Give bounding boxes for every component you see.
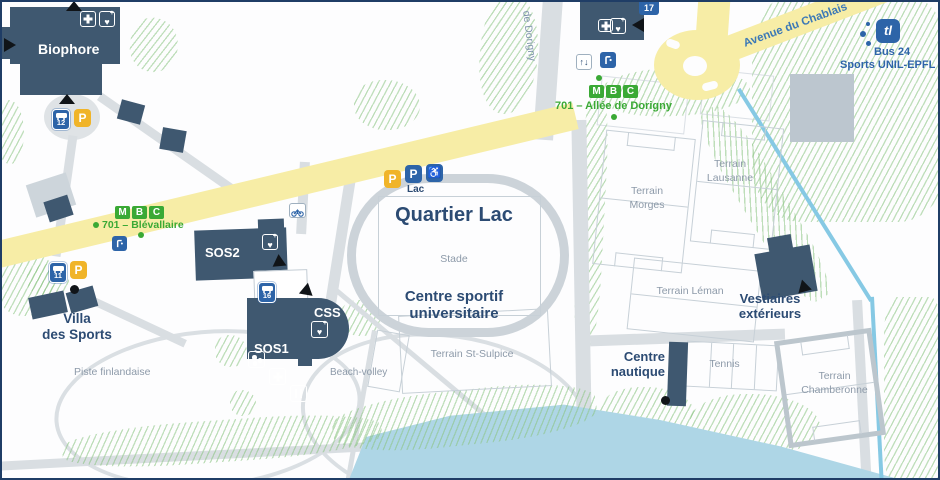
terrain-lausanne-label: TerrainLausanne <box>690 158 770 185</box>
bus24-route-label: Sports UNIL-EPFL <box>840 59 935 71</box>
roundabout-island <box>683 56 707 76</box>
parking-icon: P <box>74 109 91 127</box>
defibrillator-icon: ♥+ <box>311 321 328 338</box>
drinking-fountain-icon <box>600 52 616 68</box>
parking-icon: P <box>405 165 422 183</box>
building-gray-top-right <box>790 74 854 142</box>
parking-lac-label: Lac <box>407 184 424 196</box>
vegetation-area <box>126 14 183 76</box>
elevator-icon: ↑↓ <box>576 54 592 70</box>
defibrillator-icon: ♥+ <box>262 234 278 250</box>
vegetation-area <box>0 100 24 164</box>
tl-logo-dot <box>866 41 871 46</box>
terrain-leman-label: Terrain Léman <box>650 285 730 299</box>
first-aid-icon <box>80 11 96 27</box>
vegetation-area <box>884 297 940 480</box>
mbc-letter: M <box>589 85 604 98</box>
field-goalbox <box>800 335 849 356</box>
mbc-logo: MBC <box>115 206 164 219</box>
poi-dot <box>661 396 670 405</box>
bus-stop-icon: 16 <box>258 282 276 303</box>
defibrillator-icon: ♥+ <box>610 18 626 34</box>
villa-des-sports-label: Villades Sports <box>22 311 132 342</box>
piste-finlandaise-label: Piste finlandaise <box>74 366 150 380</box>
small-building <box>159 127 186 153</box>
mbc-logo: MBC <box>589 85 638 98</box>
small-building <box>117 99 145 125</box>
vegetation-area <box>354 80 420 130</box>
entrance-arrow-icon <box>4 38 16 52</box>
entrance-arrow-icon <box>59 94 75 104</box>
defibrillator-icon: ♥+ <box>99 11 115 27</box>
bus-stop-icon: 12 <box>52 109 70 130</box>
bus-glyph <box>262 286 273 292</box>
tl-logo-dot <box>866 22 870 26</box>
tennis-label: Tennis <box>702 358 747 372</box>
poi-dot <box>70 285 79 294</box>
mbc-letter: M <box>115 206 130 219</box>
parking-icon: P <box>384 170 401 188</box>
bike-station-icon <box>289 203 306 218</box>
drinking-fountain-icon <box>112 236 127 251</box>
stade-label: Stade <box>404 253 504 267</box>
bus-stop-icon: 17 <box>639 2 659 15</box>
centre-sportif-label: Centre sportifuniversitaire <box>354 288 554 323</box>
beach-volley-label: Beach-volley <box>330 366 387 379</box>
stop-dot <box>596 75 602 81</box>
stop-dot <box>93 222 99 228</box>
court-divider <box>753 345 756 389</box>
field-goalbox <box>627 132 676 151</box>
building-css-foot <box>298 358 312 366</box>
mbc-letter: C <box>149 206 164 219</box>
centre-nautique-label: Centrenautique <box>590 350 665 380</box>
first-aid-icon <box>269 368 286 385</box>
terrain-chamberonne-label: TerrainChamberonne <box>792 370 877 397</box>
restaurant-icon <box>290 385 307 402</box>
sos1-label: SOS1 <box>254 341 289 356</box>
biophore-label: Biophore <box>38 41 99 57</box>
stop-dot <box>611 114 617 120</box>
building-sos2-annex <box>258 219 284 233</box>
bus-glyph <box>56 113 67 119</box>
css-label: CSS <box>314 305 341 320</box>
mbc-letter: C <box>623 85 638 98</box>
bus-stop-icon: 11 <box>49 262 67 283</box>
terrain-st-sulpice-label: Terrain St-Sulpice <box>412 348 532 362</box>
stop-dot <box>138 232 144 238</box>
bus24-label: Bus 24 <box>874 46 910 58</box>
field-goalbox <box>812 420 861 441</box>
parking-icon: P <box>70 261 87 279</box>
terrain-morges-label: TerrainMorges <box>607 185 687 212</box>
stop-allee-de-dorigny-label: 701 – Allée de Dorigny <box>555 100 672 112</box>
quartier-lac-label: Quartier Lac <box>354 204 554 227</box>
building-biophore-wing <box>20 62 102 95</box>
vestiaires-exterieurs-label: Vestiairesextérieurs <box>720 292 820 322</box>
tl-logo-dot <box>860 31 866 37</box>
building-centre-nautique <box>667 342 688 407</box>
mbc-letter: B <box>132 206 147 219</box>
entrance-arrow-icon <box>66 1 82 11</box>
mbc-letter: B <box>606 85 621 98</box>
accessible-parking-icon: ♿ <box>426 164 443 182</box>
tl-logo: tl <box>876 19 900 43</box>
stop-blevallaire-label: 701 – Blévallaire <box>102 219 184 231</box>
sos2-label: SOS2 <box>205 245 240 260</box>
bus-glyph <box>53 266 64 272</box>
campus-map: ♥+ ♥+ ♥+ ♥+ 12 P 11 P 16 17 P P ♿ Lac ↑↓… <box>0 0 940 480</box>
entrance-arrow-icon <box>632 18 644 32</box>
field-goalbox <box>710 230 755 248</box>
